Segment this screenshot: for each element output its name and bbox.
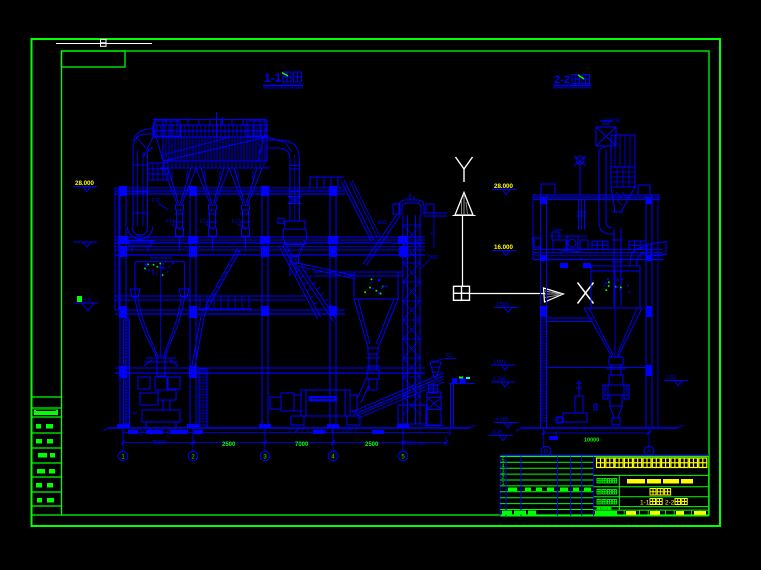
svg-text:1-1: 1-1 [264, 71, 282, 85]
svg-text:16.000: 16.000 [494, 244, 513, 251]
svg-text:850: 850 [418, 441, 426, 446]
svg-text:2500: 2500 [222, 442, 236, 448]
svg-text:7000: 7000 [152, 441, 166, 447]
svg-text:1-1: 1-1 [640, 500, 650, 507]
svg-text:1500: 1500 [404, 441, 416, 447]
svg-text:1295: 1295 [128, 410, 138, 415]
svg-text:F13: F13 [232, 219, 241, 225]
svg-text:E01: E01 [378, 220, 387, 226]
svg-text:F14: F14 [166, 219, 175, 225]
svg-text:2500: 2500 [365, 442, 379, 448]
svg-text:2-2: 2-2 [554, 74, 570, 86]
svg-text:F12: F12 [200, 219, 209, 225]
svg-text:90: 90 [430, 231, 435, 236]
svg-text:F11: F11 [152, 198, 160, 204]
svg-text:28.000: 28.000 [494, 183, 513, 190]
svg-text:10000: 10000 [584, 438, 599, 444]
svg-text:1: 1 [501, 481, 504, 487]
svg-text:2-2: 2-2 [665, 500, 675, 507]
svg-text:7000: 7000 [295, 442, 309, 448]
svg-text:28.000: 28.000 [75, 180, 94, 187]
